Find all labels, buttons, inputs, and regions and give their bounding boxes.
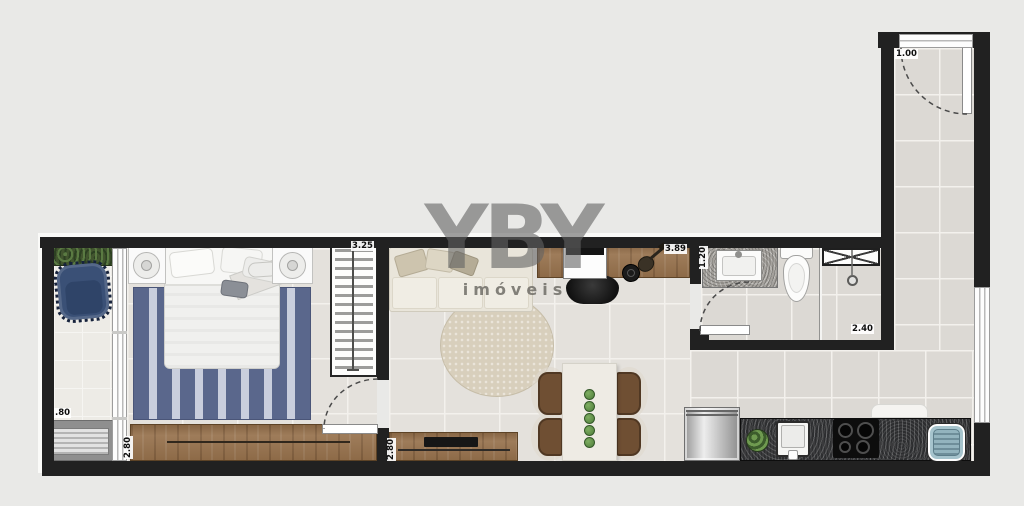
dimension-label-bathroom-depth: 2.40 bbox=[851, 324, 874, 334]
dining-chair bbox=[616, 418, 641, 456]
wardrobe-rod bbox=[352, 246, 354, 371]
outer-wall-bottom bbox=[42, 461, 990, 476]
counter-shelf bbox=[871, 404, 928, 418]
kitchen-faucet-icon bbox=[788, 450, 798, 460]
potted-plant bbox=[746, 429, 769, 452]
bedroom-living-wall bbox=[377, 248, 389, 380]
hall-wall-left bbox=[881, 38, 894, 350]
dining-chair bbox=[538, 418, 563, 456]
bed-duvet bbox=[165, 284, 279, 368]
dresser-handle bbox=[167, 441, 350, 443]
dimension-label-entry-hall: 1.00 bbox=[895, 49, 918, 59]
window-mullion bbox=[112, 331, 127, 334]
window-mullion bbox=[112, 417, 127, 420]
bathroom-faucet-icon bbox=[735, 251, 742, 258]
entry-door bbox=[962, 47, 972, 114]
balcony-armchair-seat bbox=[65, 279, 104, 315]
bed-pillow bbox=[169, 247, 216, 278]
tv-soundbar bbox=[398, 449, 510, 451]
washer-appliance-lid bbox=[933, 429, 960, 456]
table-lamp-inner bbox=[141, 260, 152, 271]
wardrobe bbox=[330, 240, 378, 377]
bedroom-door bbox=[322, 424, 378, 434]
watermark-brand: YBY bbox=[422, 192, 602, 284]
shower-enclosure bbox=[822, 248, 880, 266]
shower-head-icon bbox=[847, 275, 858, 286]
table-centerpiece bbox=[584, 437, 595, 448]
table-centerpiece bbox=[584, 389, 595, 400]
wardrobe-rod-cap bbox=[347, 369, 359, 371]
balcony-sliding-door-window bbox=[112, 248, 127, 461]
bathroom-sink-basin bbox=[722, 256, 756, 276]
bathroom-wall-bottom bbox=[690, 340, 894, 350]
dining-chair bbox=[538, 372, 563, 415]
table-centerpiece bbox=[584, 425, 595, 436]
kitchen-sink-basin bbox=[781, 425, 805, 448]
table-centerpiece bbox=[584, 413, 595, 424]
dimension-label-living-depth: 2.80 bbox=[387, 438, 396, 461]
table-lamp-inner bbox=[287, 260, 298, 271]
cooktop-burner-icon bbox=[839, 441, 851, 453]
bathroom-door bbox=[700, 325, 750, 335]
dimension-label-bedroom-width: 3.25 bbox=[351, 241, 374, 251]
right-wall-window bbox=[974, 287, 990, 423]
watermark-subtitle: imóveis bbox=[452, 280, 578, 299]
dimension-label-bedroom-depth: 2.80 bbox=[124, 436, 133, 459]
entry-door-opening-gap bbox=[899, 34, 973, 48]
floor-plan: .80 2.80 3.25 2.80 3.89 1.20 2.40 1.00 Y… bbox=[0, 0, 1024, 506]
tv bbox=[424, 437, 478, 447]
dimension-label-balcony: .80 bbox=[54, 408, 71, 418]
air-conditioner-grille bbox=[52, 428, 109, 455]
outer-wall-left bbox=[42, 237, 54, 461]
table-centerpiece bbox=[584, 401, 595, 412]
cooktop-burner-icon bbox=[838, 423, 853, 438]
dimension-label-living-width: 3.89 bbox=[664, 244, 687, 254]
dining-chair bbox=[616, 372, 641, 415]
dimension-label-bathroom-vanity: 1.20 bbox=[699, 246, 708, 269]
cooktop-burner-icon bbox=[857, 422, 874, 439]
cooktop-burner-icon bbox=[856, 440, 870, 454]
refrigerator-handles bbox=[686, 410, 738, 416]
